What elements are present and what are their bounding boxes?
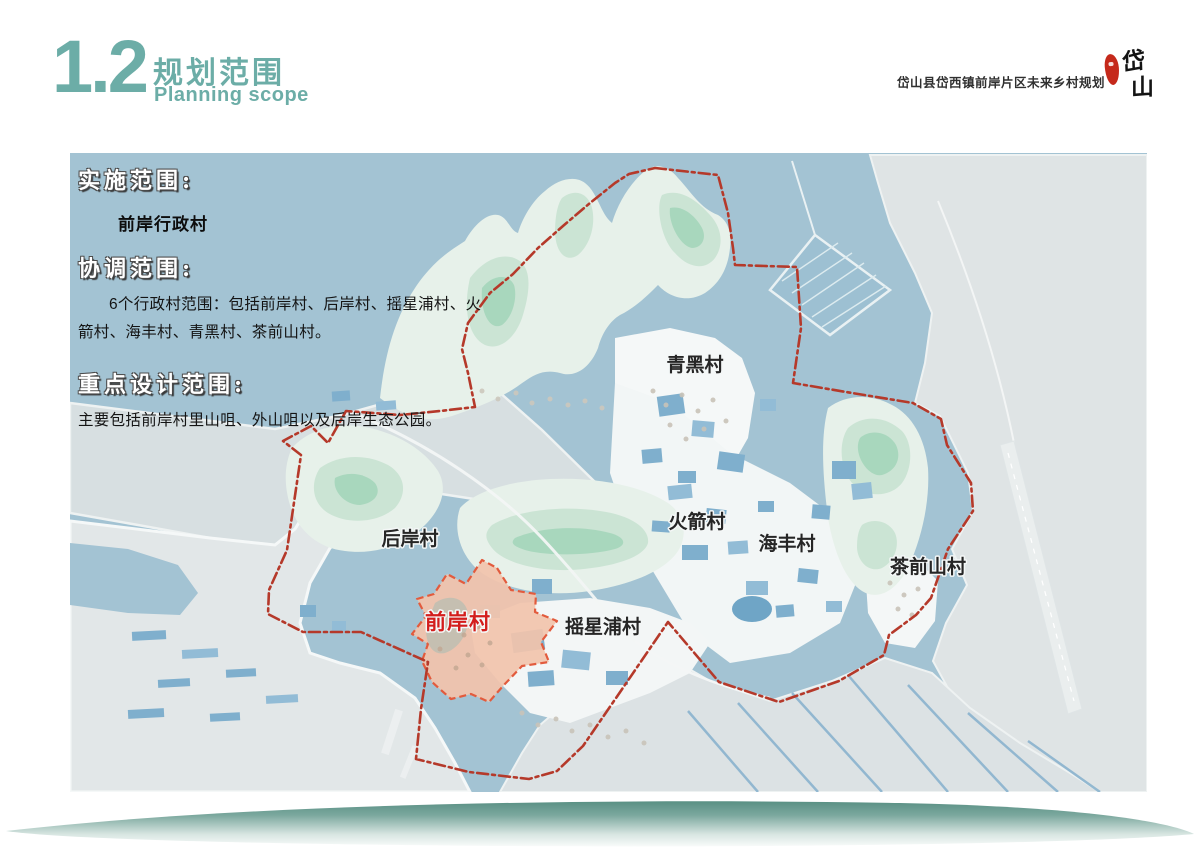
red-seal-stamp-icon [1104,53,1121,85]
key-design-scope-heading: 重点设计范围: [78,367,496,399]
footer-swoosh [0,787,1200,849]
key-design-scope-text: 主要包括前岸村里山咀、外山咀以及后岸生态公园。 [78,407,496,435]
village-label-haifeng: 海丰村 [758,532,815,555]
village-label-qinghei: 青黑村 [666,353,723,376]
page-title-en: Planning scope [154,84,309,107]
page: { "header": { "section_number": "1.2", "… [0,0,1200,849]
daishan-seal-logo: 岱 山 [1103,48,1161,104]
village-label-qianan: 前岸村 [425,610,491,634]
seal-character-bottom: 山 [1131,75,1154,100]
planning-map: 青黑村 后岸村 火箭村 海丰村 茶前山村 摇星浦村 前岸村 实施范围: 前岸行政… [70,153,1147,792]
village-label-huojian: 火箭村 [668,510,725,533]
section-number: 1.2 [52,30,146,104]
village-label-houan: 后岸村 [381,527,438,550]
seal-character-top: 岱 [1122,48,1145,75]
village-label-chaqianshan: 茶前山村 [890,555,966,578]
footer-swoosh-shape [6,801,1194,846]
village-label-yaoxingpu: 摇星浦村 [565,615,641,638]
implementation-scope-heading: 实施范围: [78,163,496,195]
implementation-scope-value: 前岸行政村 [118,210,496,235]
coordination-scope-text: 6个行政村范围：包括前岸村、后岸村、摇星浦村、火箭村、海丰村、青黑村、茶前山村。 [78,291,496,347]
coordination-scope-heading: 协调范围: [78,251,496,283]
project-name: 岱山县岱西镇前岸片区未来乡村规划 [897,72,1105,91]
scope-text-overlay: 实施范围: 前岸行政村 协调范围: 6个行政村范围：包括前岸村、后岸村、摇星浦村… [78,163,496,435]
